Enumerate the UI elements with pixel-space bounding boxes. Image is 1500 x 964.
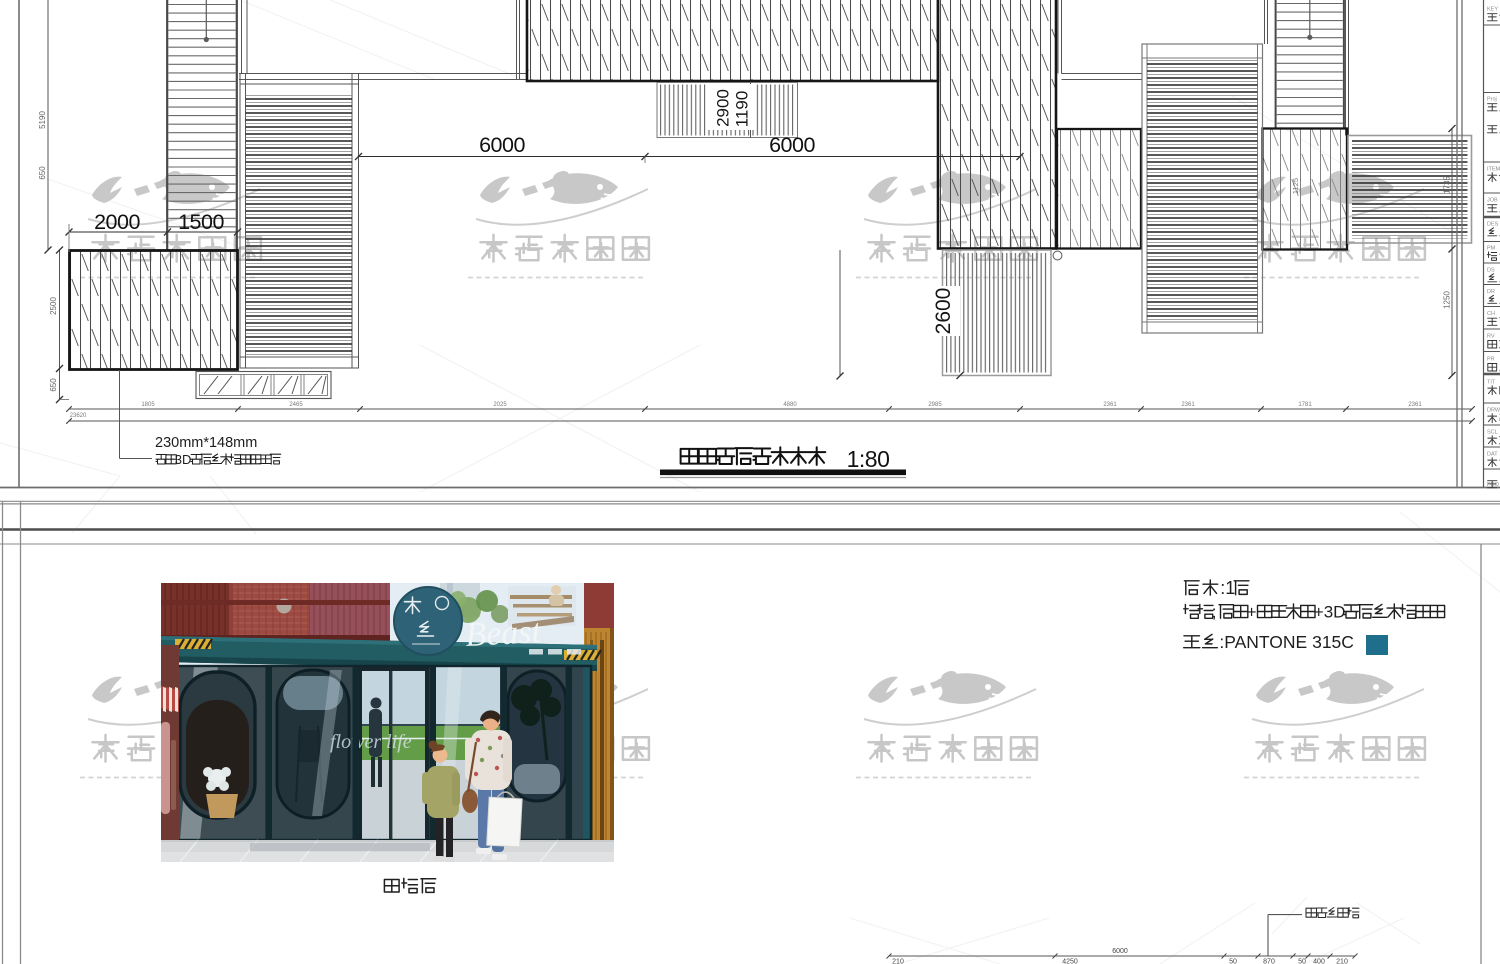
- svg-text:2985: 2985: [928, 402, 942, 408]
- svg-text:650: 650: [38, 166, 47, 180]
- svg-text:1735: 1735: [1443, 176, 1452, 194]
- svg-text:2600: 2600: [932, 288, 955, 335]
- svg-text:2500: 2500: [49, 297, 58, 315]
- svg-text:50: 50: [1298, 959, 1306, 964]
- svg-text:SCL: SCL: [1487, 430, 1498, 436]
- svg-text:1190: 1190: [732, 91, 751, 128]
- svg-text:1500: 1500: [178, 210, 224, 234]
- svg-text:PM: PM: [1487, 246, 1496, 252]
- svg-text:210: 210: [1336, 959, 1348, 964]
- svg-text:400: 400: [1313, 959, 1325, 964]
- svg-text:1781: 1781: [1298, 402, 1312, 408]
- svg-text:50: 50: [1229, 959, 1237, 964]
- svg-text:3D: 3D: [175, 452, 192, 467]
- svg-text:KEY: KEY: [1487, 7, 1498, 13]
- svg-text:6000: 6000: [769, 133, 815, 157]
- svg-text:ITEM: ITEM: [1487, 167, 1500, 173]
- svg-text:+3D: +3D: [1314, 603, 1346, 622]
- svg-text:TIT: TIT: [1487, 380, 1496, 386]
- svg-text:+: +: [1247, 603, 1257, 622]
- svg-text:650: 650: [49, 378, 58, 392]
- svg-text:2465: 2465: [289, 402, 303, 408]
- svg-text:2361: 2361: [1181, 402, 1195, 408]
- svg-text:RV: RV: [1487, 334, 1495, 340]
- svg-text:1250: 1250: [1443, 291, 1452, 309]
- svg-text:DR: DR: [1487, 289, 1495, 295]
- svg-text:4880: 4880: [783, 402, 797, 408]
- svg-text:2361: 2361: [1103, 402, 1117, 408]
- svg-text:6000: 6000: [1112, 948, 1128, 955]
- svg-text:DES: DES: [1487, 222, 1499, 228]
- svg-text:DS: DS: [1487, 268, 1495, 274]
- svg-text:CH: CH: [1487, 311, 1495, 317]
- svg-text:Proj: Proj: [1487, 97, 1497, 103]
- svg-text:2361: 2361: [1408, 402, 1422, 408]
- svg-text:1:80: 1:80: [847, 446, 890, 472]
- svg-text:2025: 2025: [493, 402, 507, 408]
- svg-text:PR: PR: [1487, 357, 1495, 363]
- svg-text:210: 210: [892, 959, 904, 964]
- svg-text:2000: 2000: [94, 210, 140, 234]
- svg-text:1805: 1805: [141, 402, 155, 408]
- svg-text:4250: 4250: [1062, 959, 1078, 964]
- svg-text:;: ;: [1212, 603, 1217, 622]
- svg-text:870: 870: [1263, 959, 1275, 964]
- svg-text:1125: 1125: [1291, 178, 1300, 194]
- svg-text::1: :1: [1220, 578, 1235, 598]
- svg-text:6000: 6000: [479, 133, 525, 157]
- svg-text::PANTONE 315C: :PANTONE 315C: [1219, 632, 1354, 652]
- svg-text:PRO: PRO: [1487, 482, 1500, 488]
- svg-text:DAT: DAT: [1487, 452, 1498, 458]
- svg-text:230mm*148mm: 230mm*148mm: [155, 435, 257, 451]
- svg-text:flower life: flower life: [330, 731, 412, 753]
- svg-text:JOB: JOB: [1487, 198, 1498, 204]
- svg-text:23620: 23620: [70, 413, 87, 419]
- svg-text:5190: 5190: [38, 111, 47, 129]
- svg-text:DRW: DRW: [1487, 408, 1500, 414]
- svg-text:2900: 2900: [713, 89, 732, 127]
- svg-text:Beast: Beast: [464, 613, 543, 654]
